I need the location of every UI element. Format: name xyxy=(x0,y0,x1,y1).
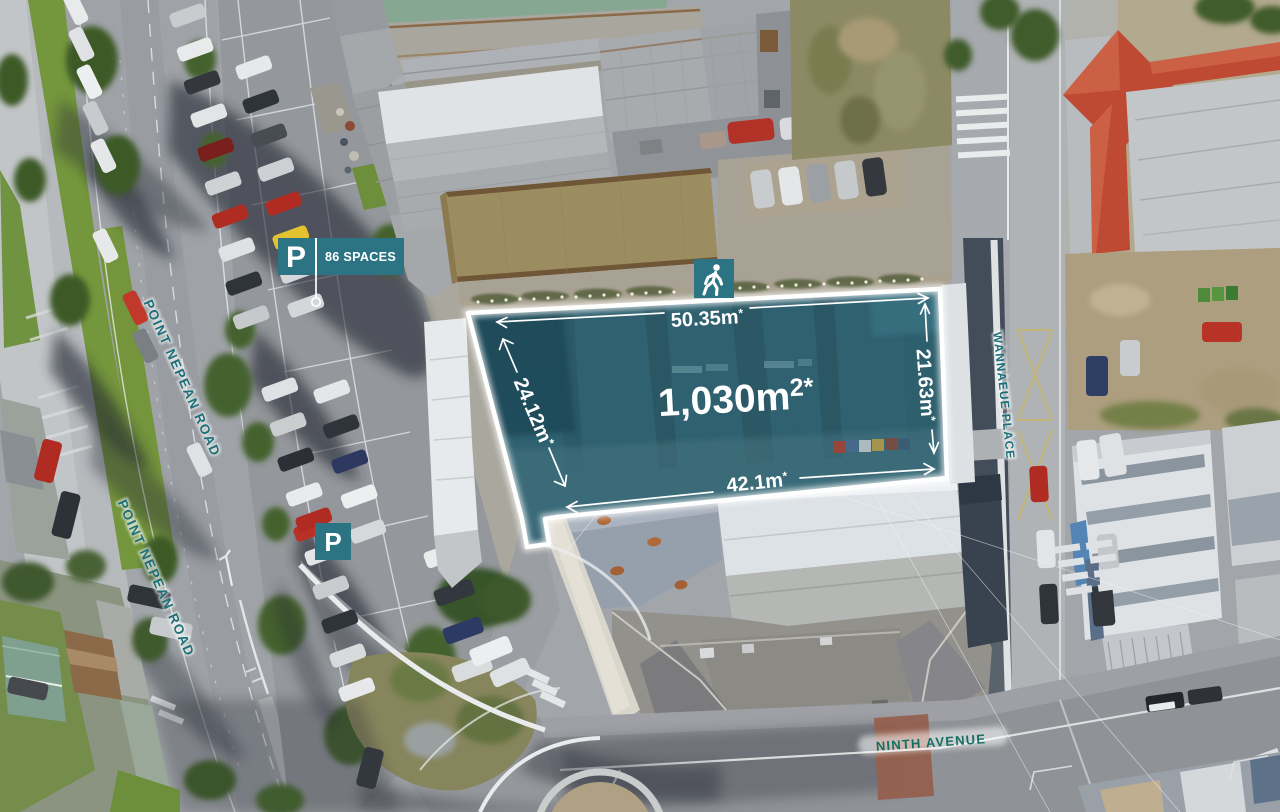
svg-text:50.35m*: 50.35m* xyxy=(670,306,744,332)
svg-text:86 SPACES: 86 SPACES xyxy=(325,250,396,264)
svg-text:P: P xyxy=(286,241,306,274)
svg-text:P: P xyxy=(324,527,341,557)
